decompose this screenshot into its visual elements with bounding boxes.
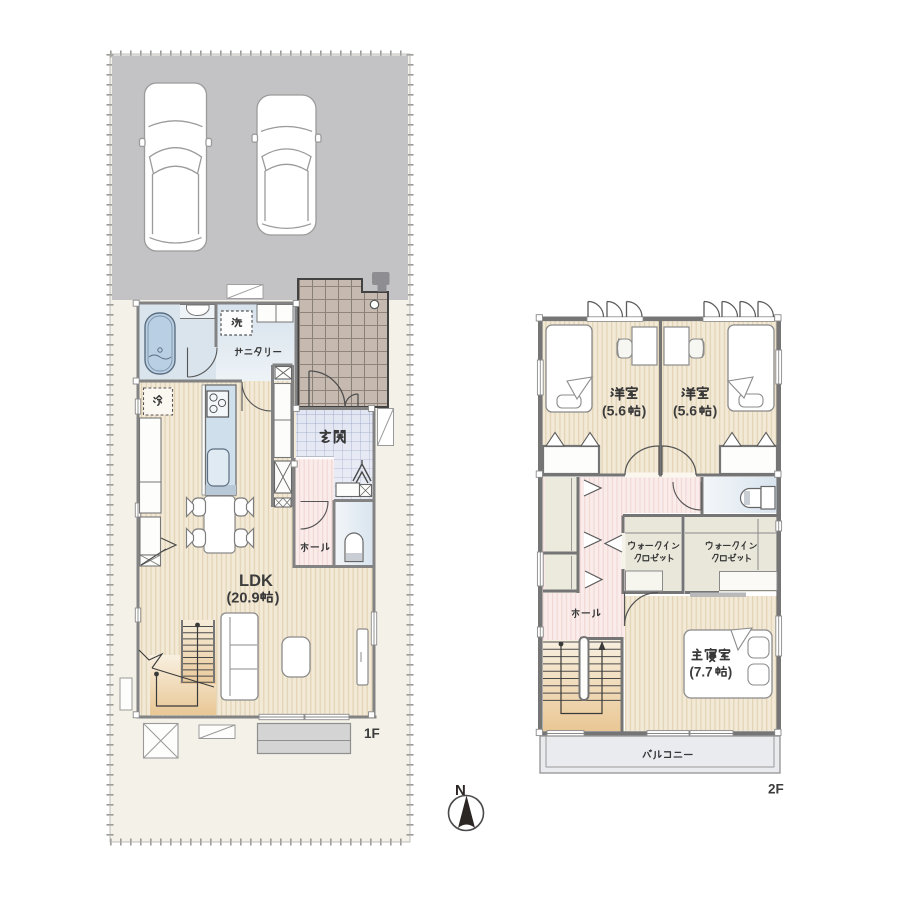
svg-text:(7.7: (7.7 (689, 665, 712, 680)
svg-text:LDK: LDK (239, 572, 273, 590)
svg-text:N: N (455, 782, 466, 799)
svg-text:): ) (642, 403, 647, 419)
svg-text:): ) (728, 665, 733, 680)
svg-text:): ) (713, 403, 718, 419)
svg-text:(5.6: (5.6 (602, 403, 626, 419)
svg-text:): ) (275, 591, 280, 607)
svg-text:(20.9: (20.9 (226, 591, 259, 607)
svg-text:2F: 2F (768, 782, 784, 797)
svg-text:1F: 1F (364, 726, 380, 741)
svg-text:(5.6: (5.6 (673, 403, 697, 419)
